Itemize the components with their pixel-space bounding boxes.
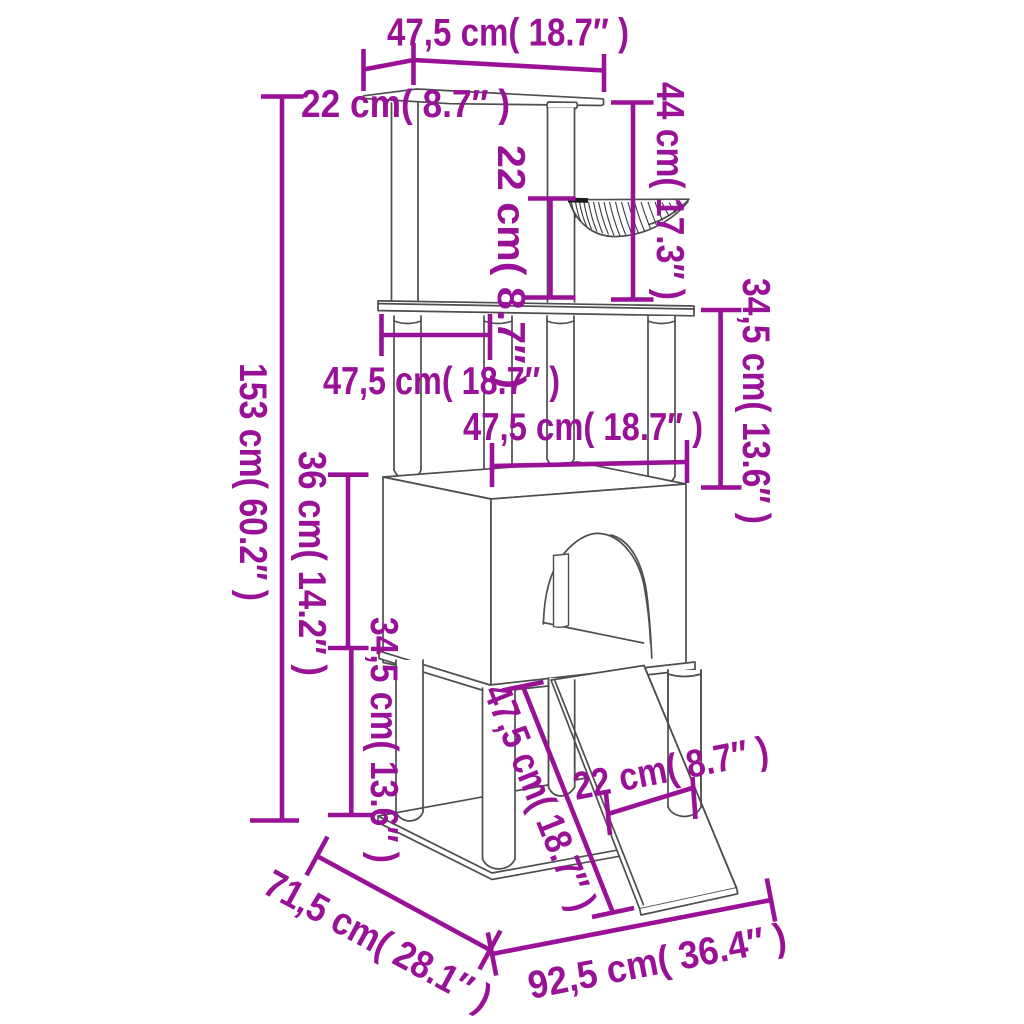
svg-text:36 cm( 14.2″ ): 36 cm( 14.2″ ) [290, 451, 333, 676]
svg-text:47,5 cm( 18.7″ ): 47,5 cm( 18.7″ ) [387, 12, 629, 55]
svg-text:44 cm( 17.3″ ): 44 cm( 17.3″ ) [648, 82, 691, 300]
svg-text:34,5 cm( 13.6″ ): 34,5 cm( 13.6″ ) [362, 617, 405, 863]
svg-text:47,5 cm( 18.7″ ): 47,5 cm( 18.7″ ) [463, 406, 703, 449]
svg-text:47,5 cm( 18.7″ ): 47,5 cm( 18.7″ ) [323, 360, 560, 403]
svg-text:22 cm( 8.7″ ): 22 cm( 8.7″ ) [301, 83, 510, 126]
svg-text:34,5 cm( 13.6″ ): 34,5 cm( 13.6″ ) [734, 278, 777, 524]
svg-text:153 cm( 60.2″ ): 153 cm( 60.2″ ) [231, 363, 274, 601]
svg-text:22 cm( 8.7″ ): 22 cm( 8.7″ ) [489, 145, 532, 389]
